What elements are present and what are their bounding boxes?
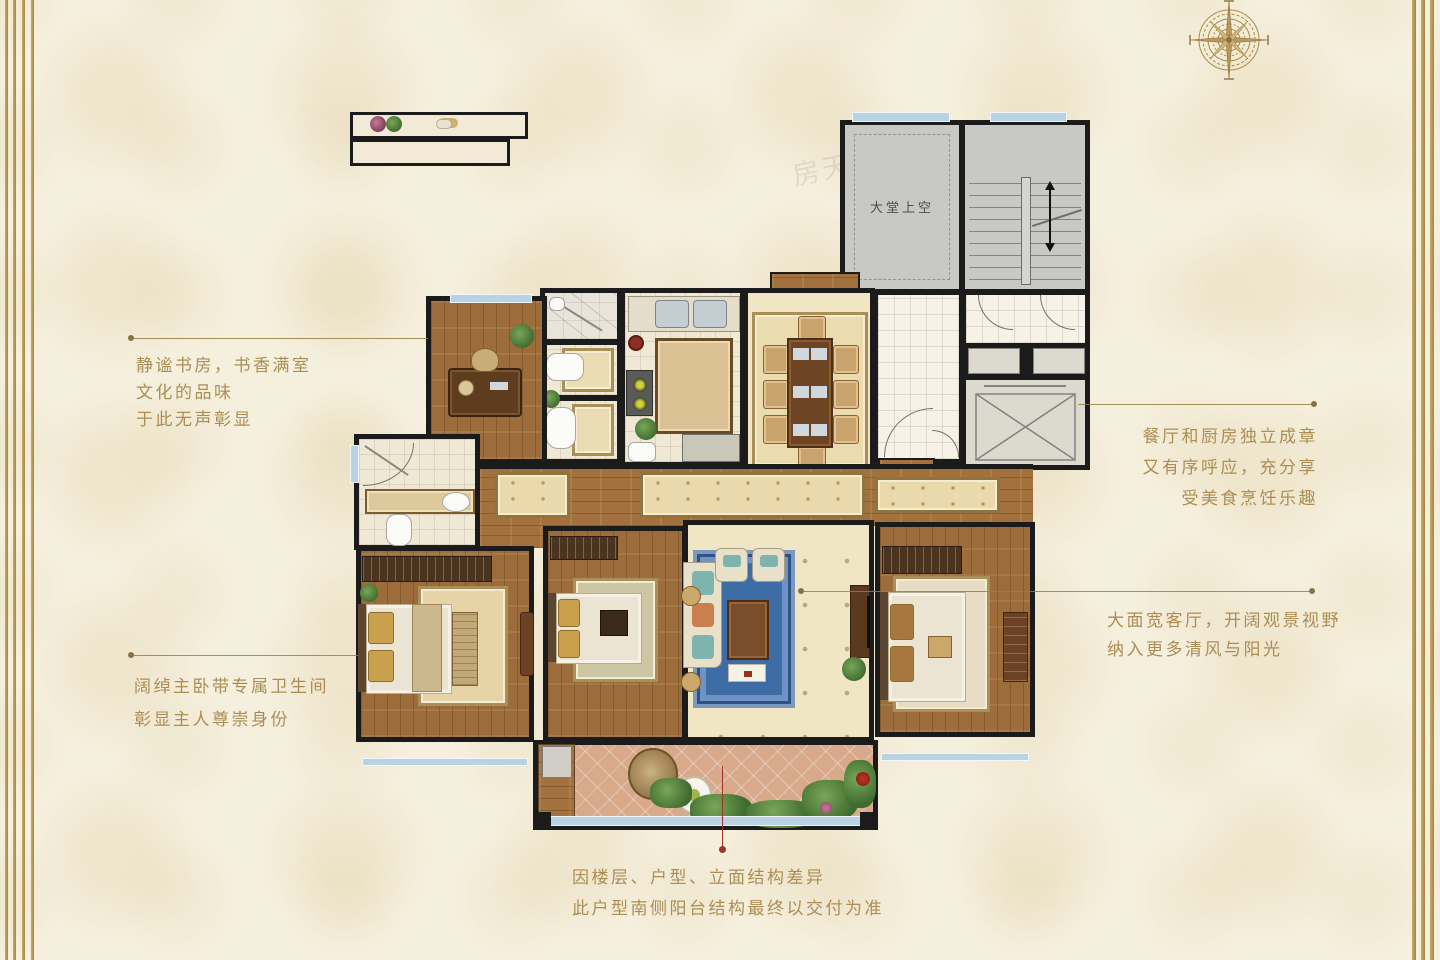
note-line: 又有序呼应，充分享 (1078, 452, 1318, 483)
room-stairwell (960, 120, 1090, 294)
cushion (760, 555, 778, 567)
bedroom3-window (881, 753, 1029, 761)
corridor-rug (495, 472, 570, 518)
bedroom3-wardrobe (1003, 612, 1028, 682)
note-disclaimer: 因楼层、户型、立面结构差异 此户型南侧阳台结构最终以交付为准 (572, 862, 884, 924)
left-border-stripe (13, 0, 16, 960)
elevator-shaft-x (966, 380, 1085, 465)
stair-arrow (1049, 187, 1051, 245)
room-lobby-void: 大堂上空 (840, 120, 964, 294)
bedroom2-wardrobe (550, 536, 618, 560)
door-arc (978, 295, 1013, 330)
flowers (856, 772, 870, 786)
coffee-table (727, 600, 769, 660)
place-setting (811, 348, 827, 360)
leader-dot (1311, 401, 1317, 407)
pillow (890, 604, 914, 640)
toilet (386, 514, 412, 546)
master-bed-headboard (358, 604, 366, 692)
elevator-shaft (961, 375, 1090, 470)
leader-dot (128, 652, 134, 658)
master-window (362, 758, 528, 766)
note-line: 纳入更多清风与阳光 (1107, 635, 1341, 664)
bed-tray (928, 636, 952, 658)
leader-dot (798, 588, 804, 594)
place-setting (811, 386, 827, 398)
pillow (368, 650, 394, 682)
corridor-patch (480, 526, 545, 548)
fridge (682, 434, 740, 462)
desk-chair (471, 348, 499, 372)
corridor-rug (640, 472, 865, 518)
vanity-sink (442, 492, 470, 512)
decor-item (744, 671, 752, 677)
room-entry-hall (873, 290, 964, 464)
decor-item (436, 119, 452, 129)
right-border-stripe (1412, 0, 1416, 960)
wall-post (533, 812, 551, 830)
flowers (820, 802, 832, 814)
leader-dot (128, 335, 134, 341)
armchair (715, 548, 748, 582)
note-line: 彰显主人尊崇身份 (134, 703, 329, 736)
left-border-stripe (31, 0, 34, 960)
burner (633, 378, 647, 392)
washbasin (546, 407, 576, 449)
bed-runner (412, 604, 442, 692)
note-line: 于此无声彰显 (136, 406, 312, 433)
plant (360, 584, 378, 602)
pillow (558, 599, 580, 627)
pillow (890, 646, 914, 682)
bed-tray (600, 610, 628, 636)
note-line: 阔绰主卧带专属卫生间 (134, 670, 329, 703)
flowers (370, 116, 386, 132)
bed-bench (452, 612, 478, 686)
dining-chair (833, 415, 859, 444)
kitchen-basin (628, 442, 656, 462)
study-window (450, 294, 532, 303)
lobby-void-label: 大堂上空 (845, 197, 959, 216)
corridor-rug (875, 477, 1000, 513)
note-line: 大面宽客厅，开阔观景视野 (1107, 606, 1341, 635)
place-setting (793, 386, 809, 398)
elevator-door (1033, 348, 1085, 374)
place-setting (793, 348, 809, 360)
door-arc (1040, 295, 1075, 330)
plant (635, 418, 657, 440)
leader-dot (1309, 588, 1315, 594)
compass-rose-icon (1188, 0, 1270, 82)
bedroom3-shelf (882, 546, 962, 574)
cushion (723, 555, 741, 567)
elevator-doors (961, 343, 1090, 377)
washer (542, 746, 572, 778)
note-living: 大面宽客厅，开阔观景视野 纳入更多清风与阳光 (1107, 606, 1341, 664)
dining-chair (833, 380, 859, 409)
dining-chair (763, 380, 789, 409)
stair-arrow-head-down (1045, 243, 1055, 252)
note-study: 静谧书房，书香满室 文化的品味 于此无声彰显 (136, 352, 312, 433)
small-rug (728, 664, 766, 682)
note-line: 餐厅和厨房独立成章 (1078, 421, 1318, 452)
left-border-stripe (22, 0, 25, 960)
entry-door-arc (932, 430, 959, 457)
study-desk (448, 368, 522, 417)
kitchen-island (655, 338, 733, 434)
right-border-stripe (1430, 0, 1434, 960)
cooking-pot (628, 335, 644, 351)
leader-line-disclaimer (722, 766, 723, 846)
dining-table (787, 338, 833, 448)
leader-dot-red (719, 846, 726, 853)
dining-chair (833, 345, 859, 374)
toilet (546, 353, 584, 381)
kitchen-sink (655, 300, 689, 328)
armchair (752, 548, 785, 582)
note-dining-kitchen: 餐厅和厨房独立成章 又有序呼应，充分享 受美食烹饪乐趣 (1078, 421, 1318, 514)
stair-rail (1021, 177, 1031, 285)
leader-line-study (132, 338, 428, 339)
plant (386, 116, 402, 132)
leader-line-master (132, 655, 358, 656)
lobby-window (852, 112, 950, 122)
bedroom3-bay-window (350, 139, 510, 166)
side-table (681, 672, 701, 692)
leader-line-living (801, 591, 1312, 592)
note-line: 静谧书房，书香满室 (136, 352, 312, 379)
note-line: 文化的品味 (136, 379, 312, 406)
note-line: 此户型南侧阳台结构最终以交付为准 (572, 893, 884, 924)
floor-plan: 大堂上空 (350, 112, 1098, 844)
plant (842, 657, 866, 681)
wall-post (860, 812, 878, 830)
place-setting (793, 424, 809, 436)
master-door (520, 612, 534, 676)
pillow (558, 630, 580, 658)
bedroom2-headboard (548, 593, 556, 662)
entry-door-arc (884, 408, 933, 457)
cushion (692, 603, 714, 627)
elevator-door (968, 348, 1020, 374)
note-line: 因楼层、户型、立面结构差异 (572, 862, 884, 893)
leader-line-dining (1078, 404, 1313, 405)
bedroom3-headboard (880, 592, 888, 700)
shower-head (549, 297, 565, 311)
kitchen-sink (693, 300, 727, 328)
plant (510, 324, 534, 348)
page: 房天下 fang.com 房天下 fang.com 大堂上空 (0, 0, 1440, 960)
desk-lamp (458, 380, 474, 396)
stove (626, 370, 653, 416)
bath-window (350, 445, 359, 483)
cushion (692, 635, 714, 659)
shower-room (540, 288, 622, 344)
right-border-stripe (1421, 0, 1425, 960)
stair-arrow-head-up (1045, 181, 1055, 190)
dining-chair (763, 415, 789, 444)
pillow (368, 612, 394, 644)
stair-window (990, 112, 1067, 122)
place-setting (811, 424, 827, 436)
left-border-stripe (5, 0, 8, 960)
side-table (681, 586, 701, 606)
master-wardrobe (362, 556, 492, 582)
note-master: 阔绰主卧带专属卫生间 彰显主人尊崇身份 (134, 670, 329, 736)
elevator-lobby (961, 290, 1090, 348)
tv-cabinet (850, 585, 870, 658)
tv (867, 596, 870, 648)
note-line: 受美食烹饪乐趣 (1078, 483, 1318, 514)
bath-rug (572, 404, 614, 456)
desk-papers (490, 382, 508, 390)
dining-chair (763, 345, 789, 374)
balcony-plants (650, 778, 692, 808)
burner (633, 397, 647, 411)
balcony-window (550, 816, 862, 826)
